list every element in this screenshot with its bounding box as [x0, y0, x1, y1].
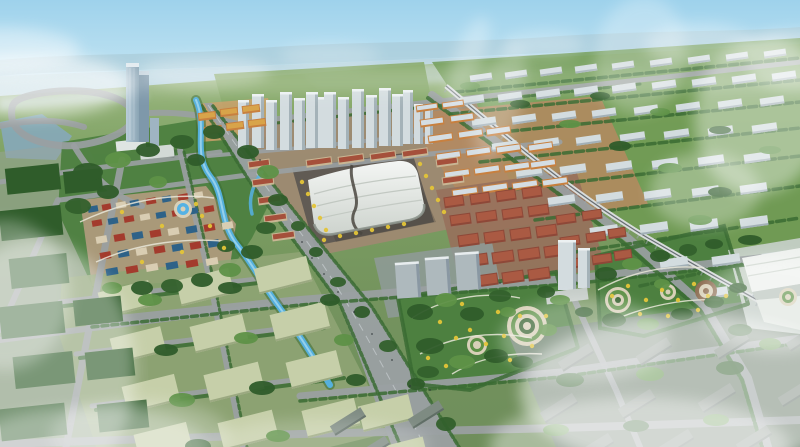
- yellow-tree: [460, 302, 464, 306]
- tree-canopy: [609, 141, 631, 151]
- park-one-garden-small-ring: [473, 341, 481, 349]
- tree-canopy: [705, 239, 723, 249]
- vehicle-dot: [391, 359, 393, 361]
- residential-tower-shade: [410, 92, 413, 144]
- yellow-tree: [468, 328, 472, 332]
- tree-canopy: [234, 332, 258, 344]
- tree-canopy: [330, 277, 346, 287]
- tree-canopy: [97, 185, 119, 199]
- yellow-tree: [312, 204, 316, 208]
- vehicle-dot: [371, 333, 373, 335]
- cloud-mist: [500, 298, 670, 382]
- yellow-tree: [324, 228, 328, 232]
- residential-tower-shade: [361, 91, 364, 148]
- residential-tower-shade: [346, 99, 349, 149]
- residential-tower-cap: [266, 100, 277, 103]
- skyscraper-crown: [126, 63, 139, 67]
- residential-tower-shade: [315, 94, 318, 148]
- tree-canopy: [218, 282, 242, 294]
- tree-canopy: [249, 381, 275, 395]
- yellow-tree: [120, 210, 124, 214]
- tree-canopy: [149, 176, 167, 188]
- tree-canopy: [65, 198, 91, 214]
- tree-canopy: [191, 273, 213, 287]
- yellow-tree: [140, 260, 144, 264]
- yellow-tree: [442, 210, 446, 214]
- yellow-tree: [194, 202, 198, 206]
- tree-canopy: [500, 307, 516, 317]
- tree-canopy: [257, 165, 279, 179]
- residential-tower-cap: [294, 98, 305, 101]
- yellow-tree: [300, 180, 304, 184]
- vehicle-dot: [301, 241, 303, 243]
- skyscraper-annex: [150, 118, 159, 146]
- yellow-tree: [386, 225, 390, 229]
- vehicle-dot: [499, 282, 501, 284]
- tree-canopy: [679, 244, 697, 256]
- vehicle-dot: [259, 159, 261, 161]
- tree-canopy: [595, 267, 617, 281]
- tree-canopy: [131, 281, 153, 295]
- yellow-tree: [338, 234, 342, 238]
- park-two-garden-b-ring: [666, 290, 671, 295]
- yellow-tree: [200, 214, 204, 218]
- city-masterplan-rendering: [0, 0, 800, 447]
- yellow-tree: [402, 222, 406, 226]
- tree-canopy: [154, 344, 178, 356]
- tree-canopy: [650, 250, 670, 262]
- tree-canopy: [379, 340, 397, 352]
- tree-canopy: [161, 279, 183, 293]
- tree-canopy: [217, 240, 235, 252]
- tree-canopy: [559, 120, 581, 128]
- yellow-tree: [444, 364, 448, 368]
- yellow-tree: [370, 228, 374, 232]
- tree-canopy: [346, 374, 366, 386]
- tree-canopy: [622, 258, 642, 270]
- yellow-tree: [626, 284, 630, 288]
- yellow-tree: [436, 198, 440, 202]
- yellow-tree: [496, 310, 500, 314]
- tree-canopy: [170, 135, 194, 149]
- vehicle-dot: [323, 273, 325, 275]
- yellow-tree: [424, 174, 428, 178]
- tree-canopy: [237, 145, 259, 159]
- yellow-tree: [660, 288, 664, 292]
- vehicle-dot: [311, 257, 313, 259]
- vehicle-dot: [429, 389, 431, 391]
- yellow-tree: [306, 192, 310, 196]
- white-office-tower-cap: [558, 240, 576, 243]
- tree-canopy: [138, 294, 162, 306]
- residential-tower-shade: [400, 96, 403, 146]
- residential-tower-cap: [338, 97, 349, 100]
- tree-canopy: [537, 286, 555, 298]
- tree-canopy: [187, 154, 205, 166]
- yellow-tree: [222, 246, 226, 250]
- residential-tower-cap: [238, 100, 249, 103]
- residential-tower-shade: [333, 94, 336, 148]
- tree-canopy: [449, 355, 475, 369]
- tree-canopy: [268, 194, 288, 206]
- tree-canopy: [738, 235, 762, 245]
- tree-canopy: [489, 290, 511, 302]
- vehicle-dot: [409, 385, 411, 387]
- tree-canopy: [417, 366, 439, 378]
- yellow-tree: [676, 298, 680, 302]
- cloud-mist: [505, 31, 585, 59]
- yellow-tree: [318, 216, 322, 220]
- tree-canopy: [654, 279, 670, 289]
- yellow-tree: [208, 224, 212, 228]
- yellow-tree: [160, 224, 164, 228]
- yellow-tree: [430, 186, 434, 190]
- left-park-pond: [174, 200, 192, 218]
- tree-canopy: [241, 245, 263, 259]
- tree-canopy: [320, 294, 340, 306]
- park-one-garden-small: [467, 335, 487, 355]
- white-office-tower-shade: [587, 250, 590, 288]
- yellow-tree: [454, 336, 458, 340]
- tree-canopy: [219, 263, 241, 277]
- tree-canopy: [407, 378, 425, 390]
- white-office-tower-shade: [573, 242, 576, 290]
- yellow-tree: [438, 320, 442, 324]
- vehicle-dot: [639, 269, 641, 271]
- tree-canopy: [334, 334, 354, 346]
- white-office-tower-cap: [578, 248, 590, 251]
- tree-canopy: [309, 247, 323, 257]
- tree-canopy: [256, 222, 276, 234]
- yellow-tree: [180, 250, 184, 254]
- residential-tower-shade: [289, 94, 292, 150]
- aerial-rendering: [0, 0, 800, 447]
- residential-tower-shade: [374, 97, 377, 148]
- tree-canopy: [436, 417, 456, 431]
- yellow-tree: [322, 238, 326, 242]
- residential-tower-shade: [388, 90, 391, 146]
- vehicle-dot: [353, 311, 355, 313]
- yellow-tree: [418, 162, 422, 166]
- tree-canopy: [407, 304, 433, 320]
- yellow-tree: [610, 294, 614, 298]
- left-park-pond-ring: [181, 207, 186, 212]
- residential-tower-shade: [302, 100, 305, 150]
- cloud-mist: [650, 152, 760, 228]
- tree-canopy: [416, 338, 444, 354]
- residential-tower-shade: [274, 102, 277, 150]
- yellow-tree: [484, 342, 488, 346]
- tree-canopy: [105, 152, 131, 168]
- yellow-tree: [696, 308, 700, 312]
- tree-canopy: [203, 125, 225, 139]
- cloud-mist: [280, 43, 380, 67]
- tree-canopy: [73, 163, 103, 181]
- yellow-tree: [644, 298, 648, 302]
- tree-canopy: [435, 293, 457, 307]
- tree-canopy: [354, 306, 370, 318]
- tree-canopy: [460, 307, 484, 321]
- yellow-tree: [426, 356, 430, 360]
- vehicle-dot: [337, 291, 339, 293]
- tree-canopy: [291, 221, 305, 231]
- yellow-tree: [692, 282, 696, 286]
- tree-canopy: [136, 143, 160, 157]
- yellow-tree: [354, 231, 358, 235]
